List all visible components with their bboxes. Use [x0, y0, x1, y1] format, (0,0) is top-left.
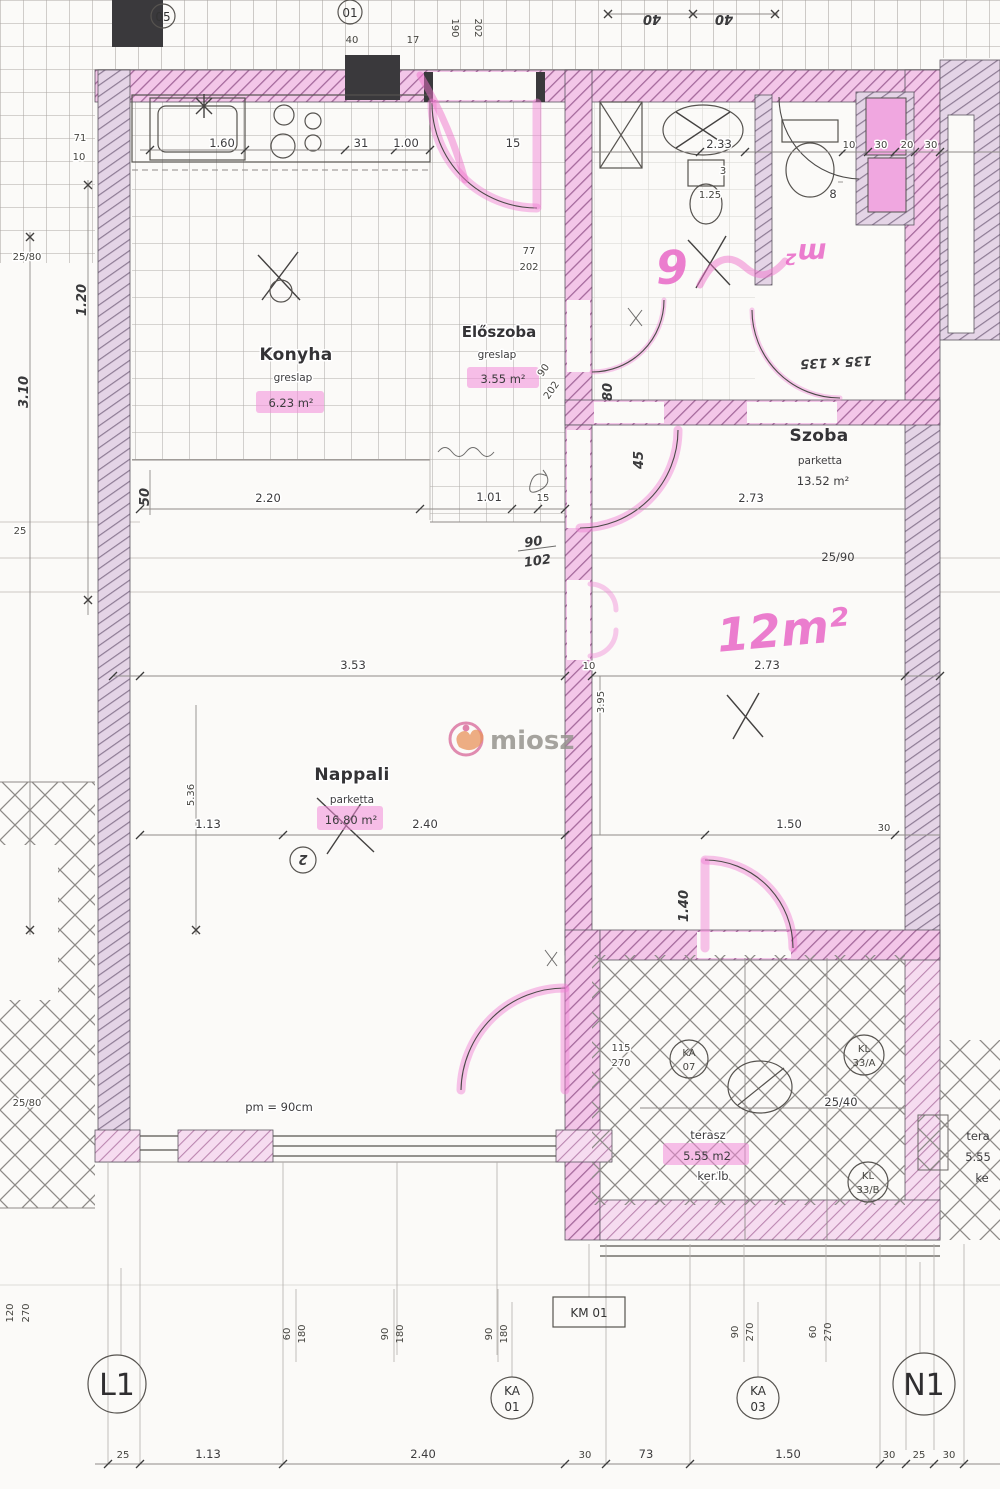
marker-kl33b-kl: KL [862, 1171, 875, 1182]
eloszoba-area: 3.55 m² [480, 372, 525, 386]
szoba-window: 25/90 [821, 550, 854, 564]
sched-60a: 60 [282, 1328, 293, 1341]
dim-sink-160: 1.60 [209, 136, 235, 150]
hand-50: 50 [138, 488, 153, 506]
room-eloszoba: Előszoba [462, 323, 537, 341]
base-30c: 30 [943, 1450, 956, 1461]
dim-hob-100: 1.00 [393, 136, 419, 150]
sched-180a: 180 [297, 1324, 308, 1343]
nappali-pm: pm = 90cm [245, 1100, 313, 1114]
dim-2580-bottom: 25/80 [13, 1098, 42, 1109]
dim-101: 1.01 [476, 490, 502, 504]
dim-202: 202 [472, 18, 483, 37]
dim-353: 3.53 [340, 658, 366, 672]
base-150: 1.50 [775, 1447, 801, 1461]
dim-tr30b: 30 [925, 140, 938, 151]
nappali-area: 16.80 m² [325, 813, 377, 827]
sched-90d: 90 [730, 1326, 741, 1339]
dim-150: 1.50 [776, 817, 802, 831]
door-202: 202 [519, 262, 538, 273]
dim-2580-top: 25/80 [13, 252, 42, 263]
sched-90b: 90 [380, 1328, 391, 1341]
sched-90c: 90 [484, 1328, 495, 1341]
szoba-floor: parketta [798, 455, 842, 467]
dim-3: 3 [720, 166, 726, 177]
dim-pillar-17: 17 [407, 35, 420, 46]
dim-113: 1.13 [195, 817, 221, 831]
marker-kl33a-kl: KL [858, 1044, 871, 1055]
floor-plan-scan: 05 01 40 17 190 202 40 40 1.60 31 1.00 1… [0, 0, 1000, 1489]
sched-180b: 180 [395, 1324, 406, 1343]
room-konyha: Konyha [259, 345, 332, 365]
hand-90: 90 [524, 534, 544, 551]
base-113: 1.13 [195, 1447, 221, 1461]
marker-ka07-num: 07 [683, 1062, 696, 1073]
dim-10: 10 [73, 152, 86, 163]
dim-536: 5.36 [186, 784, 197, 806]
sched-270e: 270 [823, 1322, 834, 1341]
hand-140: 1.40 [677, 890, 692, 922]
nappali-floor: parketta [330, 794, 374, 806]
hand-102: 102 [523, 552, 552, 571]
base-30a: 30 [579, 1450, 592, 1461]
hand-40-right: 40 [715, 11, 734, 26]
dim-190: 190 [449, 18, 460, 37]
dim-2540: 25/40 [824, 1095, 857, 1109]
dim-115: 115 [611, 1043, 630, 1054]
base-73: 73 [639, 1447, 654, 1461]
dim-tr10: 10 [843, 140, 856, 151]
base-30b: 30 [883, 1450, 896, 1461]
floor-plan-drawing: 05 01 40 17 190 202 40 40 1.60 31 1.00 1… [0, 0, 1000, 1489]
hand-80: 80 [601, 383, 616, 401]
dim-71: 71 [74, 133, 87, 144]
watermark: miosz [450, 723, 574, 756]
dim-pillar-40: 40 [346, 35, 359, 46]
marker-05: 05 [155, 10, 170, 24]
marker-01: 01 [342, 6, 357, 20]
hand-bath-m2: m² [784, 236, 827, 270]
hand-120: 1.20 [75, 284, 90, 316]
dim-t30: 30 [878, 823, 891, 834]
konyha-area: 6.23 m² [268, 396, 313, 410]
hand-40-left: 40 [643, 11, 662, 26]
neighbor-terrace-left [0, 782, 95, 1208]
dim-tr20: 20 [901, 140, 914, 151]
room-nappali: Nappali [314, 765, 389, 785]
watermark-brand: miosz [490, 726, 574, 756]
dim-8: 8 [829, 187, 836, 201]
marker-kl33a-num: 33/A [853, 1058, 876, 1069]
szoba-area: 13.52 m² [797, 474, 849, 488]
marker-ka01-num: 01 [504, 1400, 519, 1414]
marker-km01: KM 01 [570, 1306, 607, 1320]
sched-180c: 180 [499, 1324, 510, 1343]
marker-ka07-ka: KA [682, 1048, 695, 1059]
dim-270: 270 [611, 1058, 630, 1069]
hand-310: 3.10 [17, 376, 32, 408]
marker-ka03-ka: KA [750, 1384, 767, 1398]
dim-25: 25 [14, 526, 27, 537]
hand-szoba-12m2: 12m² [715, 597, 851, 662]
dim-15: 15 [537, 493, 550, 504]
eloszoba-floor: greslap [478, 349, 517, 361]
sched-60e: 60 [808, 1326, 819, 1339]
dim-240: 2.40 [412, 817, 438, 831]
dim-gap-15: 15 [506, 136, 521, 150]
door-77: 77 [523, 246, 536, 257]
hand-45: 45 [632, 451, 647, 470]
sched-270d: 270 [745, 1322, 756, 1341]
base-240: 2.40 [410, 1447, 436, 1461]
marker-ka01-ka: KA [504, 1384, 521, 1398]
konyha-floor: greslap [274, 372, 313, 384]
dim-270v: 270 [21, 1303, 32, 1322]
room-szoba: Szoba [790, 426, 849, 446]
dim-szoba-10: 10 [583, 661, 596, 672]
dim-233: 2.33 [706, 137, 732, 151]
dim-szoba-273a: 2.73 [738, 491, 764, 505]
dim-125: 1.25 [699, 190, 721, 201]
marker-ka03-num: 03 [750, 1400, 765, 1414]
terasz-floor: ker.lb [697, 1169, 728, 1183]
dim-395: 3.95 [596, 691, 607, 713]
hand-circle-2: 2 [298, 851, 307, 866]
dim-120v: 120 [5, 1303, 16, 1322]
neighbor-terasz-floor: ke [975, 1171, 988, 1185]
terasz-area: 5.55 m2 [683, 1149, 731, 1163]
dim-hob-31: 31 [354, 136, 369, 150]
marker-l1: L1 [99, 1368, 135, 1403]
neighbor-terasz-area: 5.55 [965, 1150, 991, 1164]
dim-220: 2.20 [255, 491, 281, 505]
hand-135x135: 135 x 135 [800, 352, 872, 371]
dim-tr30a: 30 [875, 140, 888, 151]
neighbor-terasz-name: tera [966, 1129, 989, 1143]
base-25b: 25 [913, 1450, 926, 1461]
dim-szoba-273b: 2.73 [754, 658, 780, 672]
hand-bath-6: 6 [655, 238, 689, 293]
marker-kl33b-num: 33/B [857, 1185, 880, 1196]
marker-n1: N1 [903, 1368, 945, 1403]
room-terasz: terasz [690, 1128, 725, 1142]
base-25a: 25 [117, 1450, 130, 1461]
